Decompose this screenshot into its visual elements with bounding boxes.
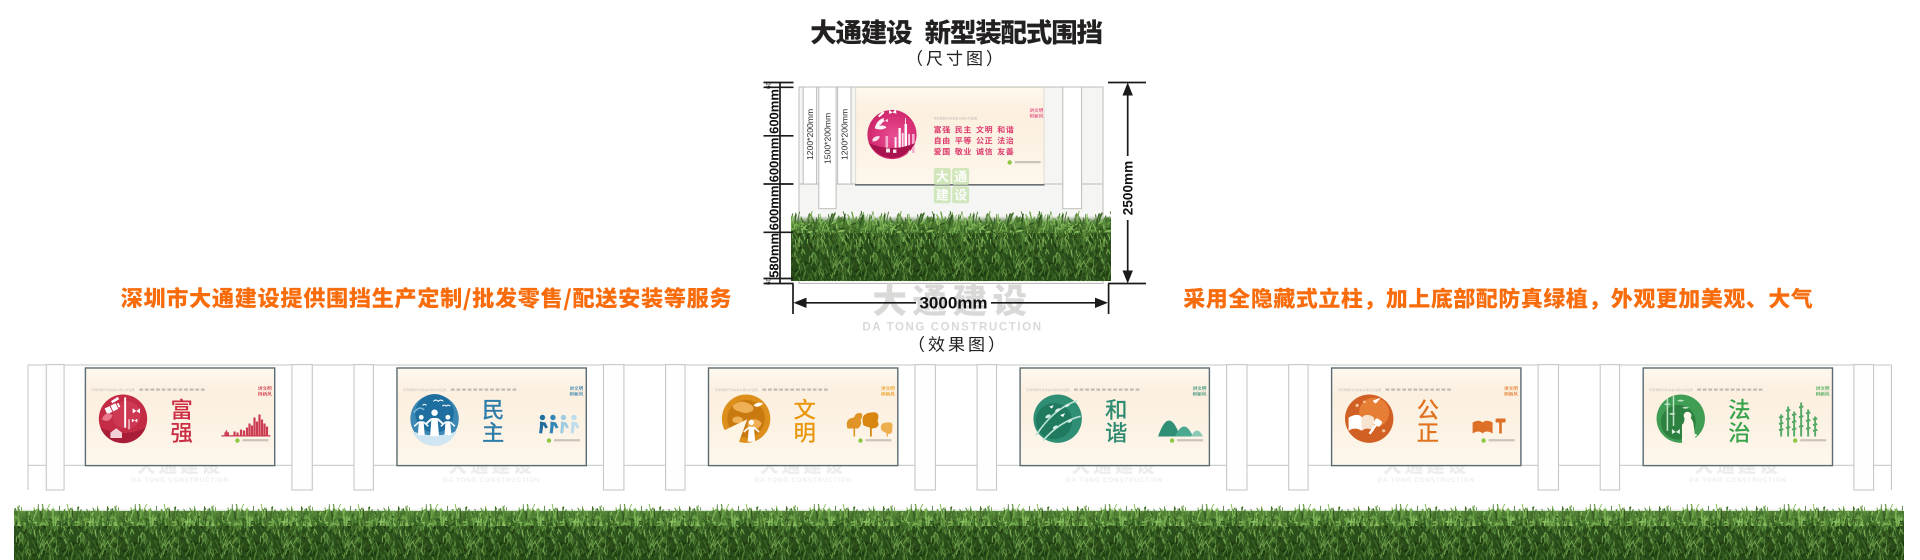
svg-text:60: 60 bbox=[767, 278, 773, 285]
svg-text:1200*200mm: 1200*200mm bbox=[805, 109, 815, 160]
svg-text:3000mm: 3000mm bbox=[919, 294, 987, 313]
svg-text:1200*200mm: 1200*200mm bbox=[840, 109, 850, 160]
svg-text:1500*200mm: 1500*200mm bbox=[823, 113, 833, 164]
svg-text:580mm: 580mm bbox=[767, 233, 782, 278]
svg-text:600mm: 600mm bbox=[767, 89, 782, 134]
svg-text:600mm: 600mm bbox=[767, 186, 782, 231]
svg-text:2500mm: 2500mm bbox=[1121, 161, 1136, 215]
svg-text:60: 60 bbox=[767, 82, 773, 89]
svg-text:600mm: 600mm bbox=[767, 138, 782, 183]
